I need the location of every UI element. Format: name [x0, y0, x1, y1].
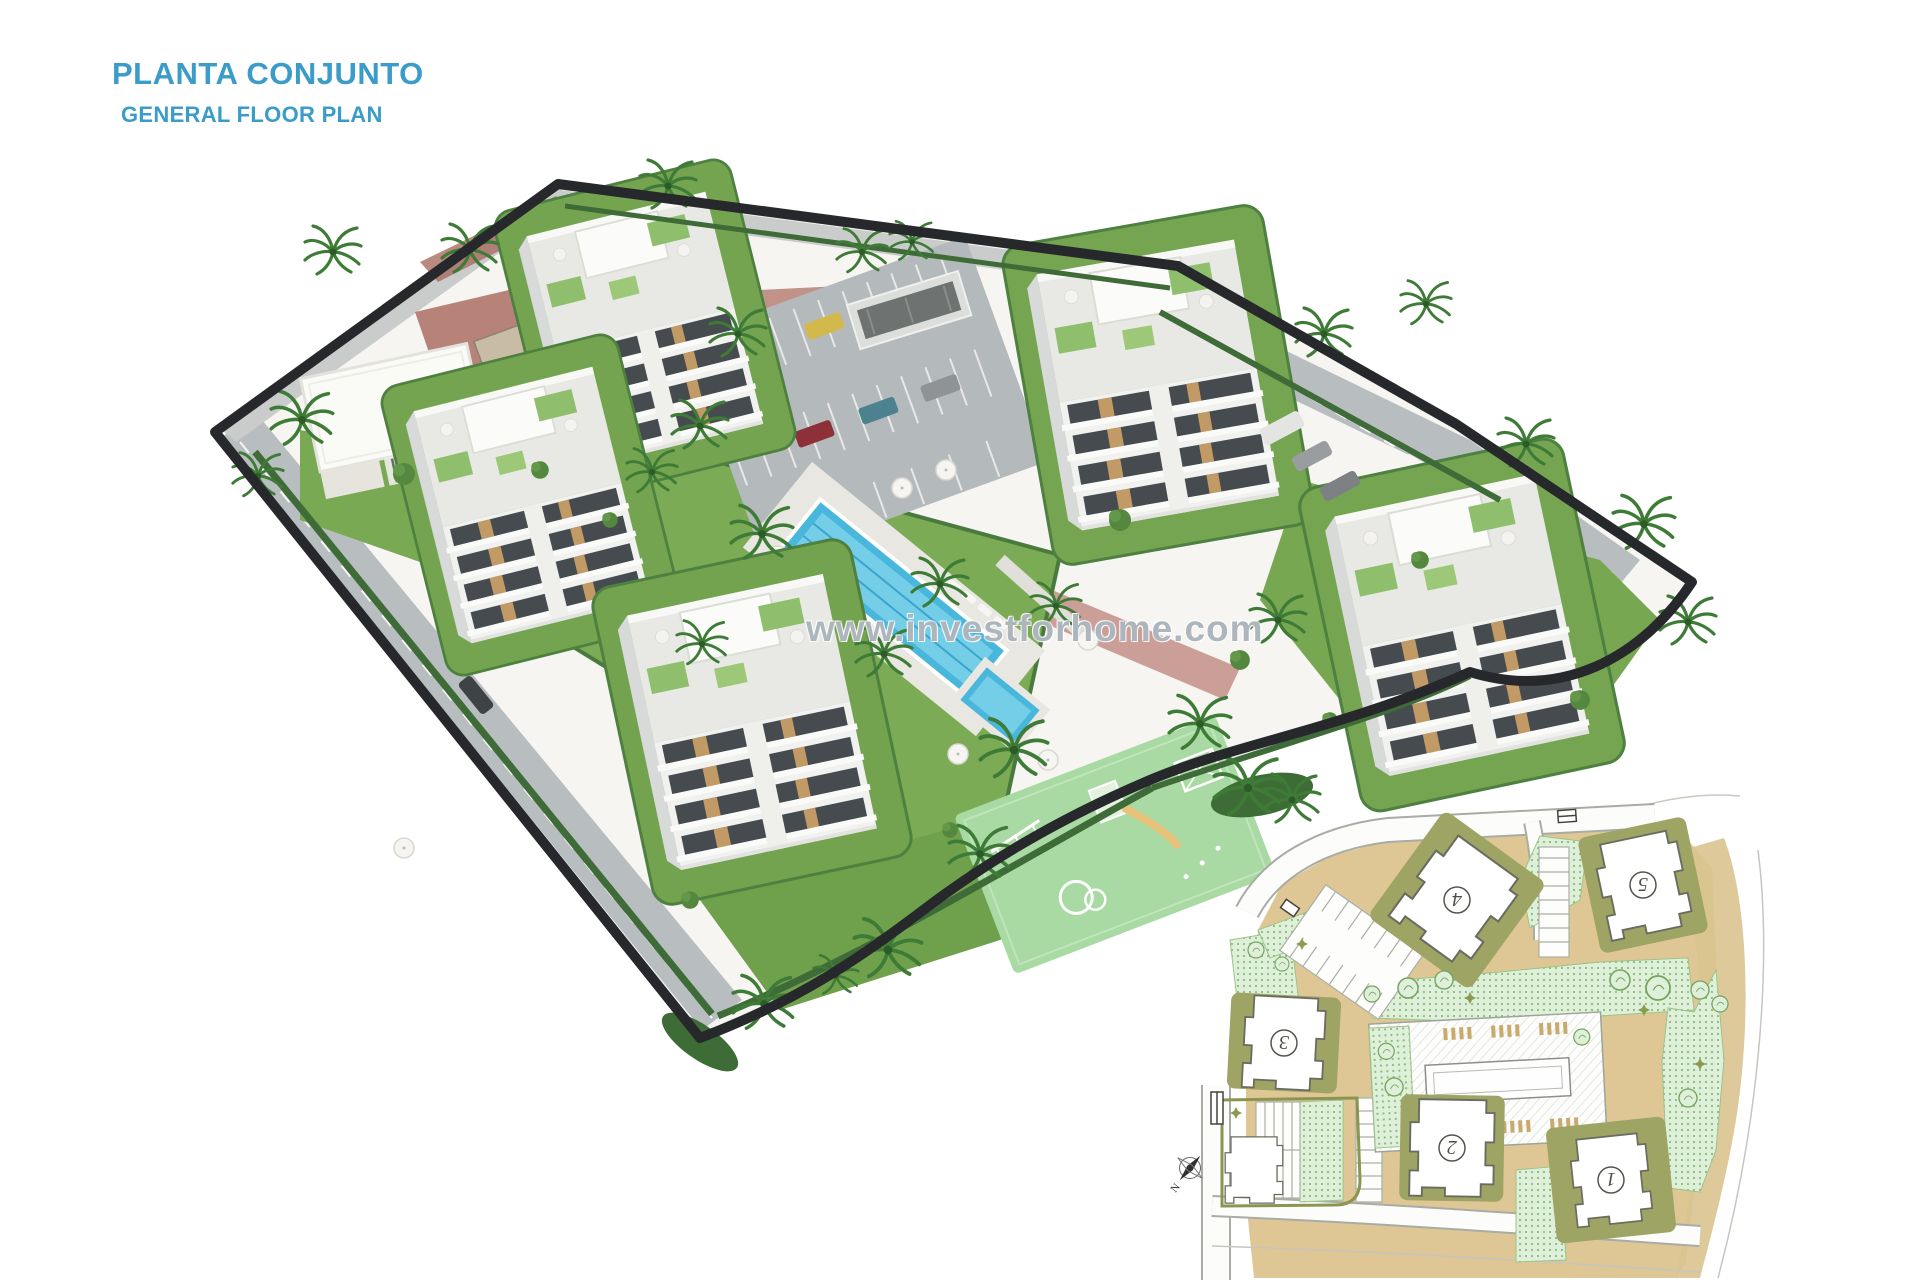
building-number-5: 5 [1638, 873, 1648, 895]
apartment-building-4 [1000, 203, 1316, 568]
compass-north-label: N [1168, 1181, 1182, 1195]
plan-building-1: 1 [1569, 1133, 1654, 1228]
plan-clubhouse [1225, 1137, 1283, 1203]
apartment-building-5 [1296, 435, 1628, 814]
building-number-1: 1 [1606, 1168, 1616, 1190]
compass-icon: N [1168, 1153, 1204, 1194]
watermark: www.investforhome.com [806, 608, 1264, 650]
page: PLANTA CONJUNTO GENERAL FLOOR PLAN [0, 0, 1920, 1280]
building-number-4: 4 [1452, 888, 1462, 910]
plan-building-2: 2 [1409, 1099, 1495, 1197]
building-number-3: 3 [1279, 1031, 1290, 1053]
plan-building-3: 3 [1242, 995, 1327, 1091]
building-number-2: 2 [1447, 1136, 1457, 1158]
